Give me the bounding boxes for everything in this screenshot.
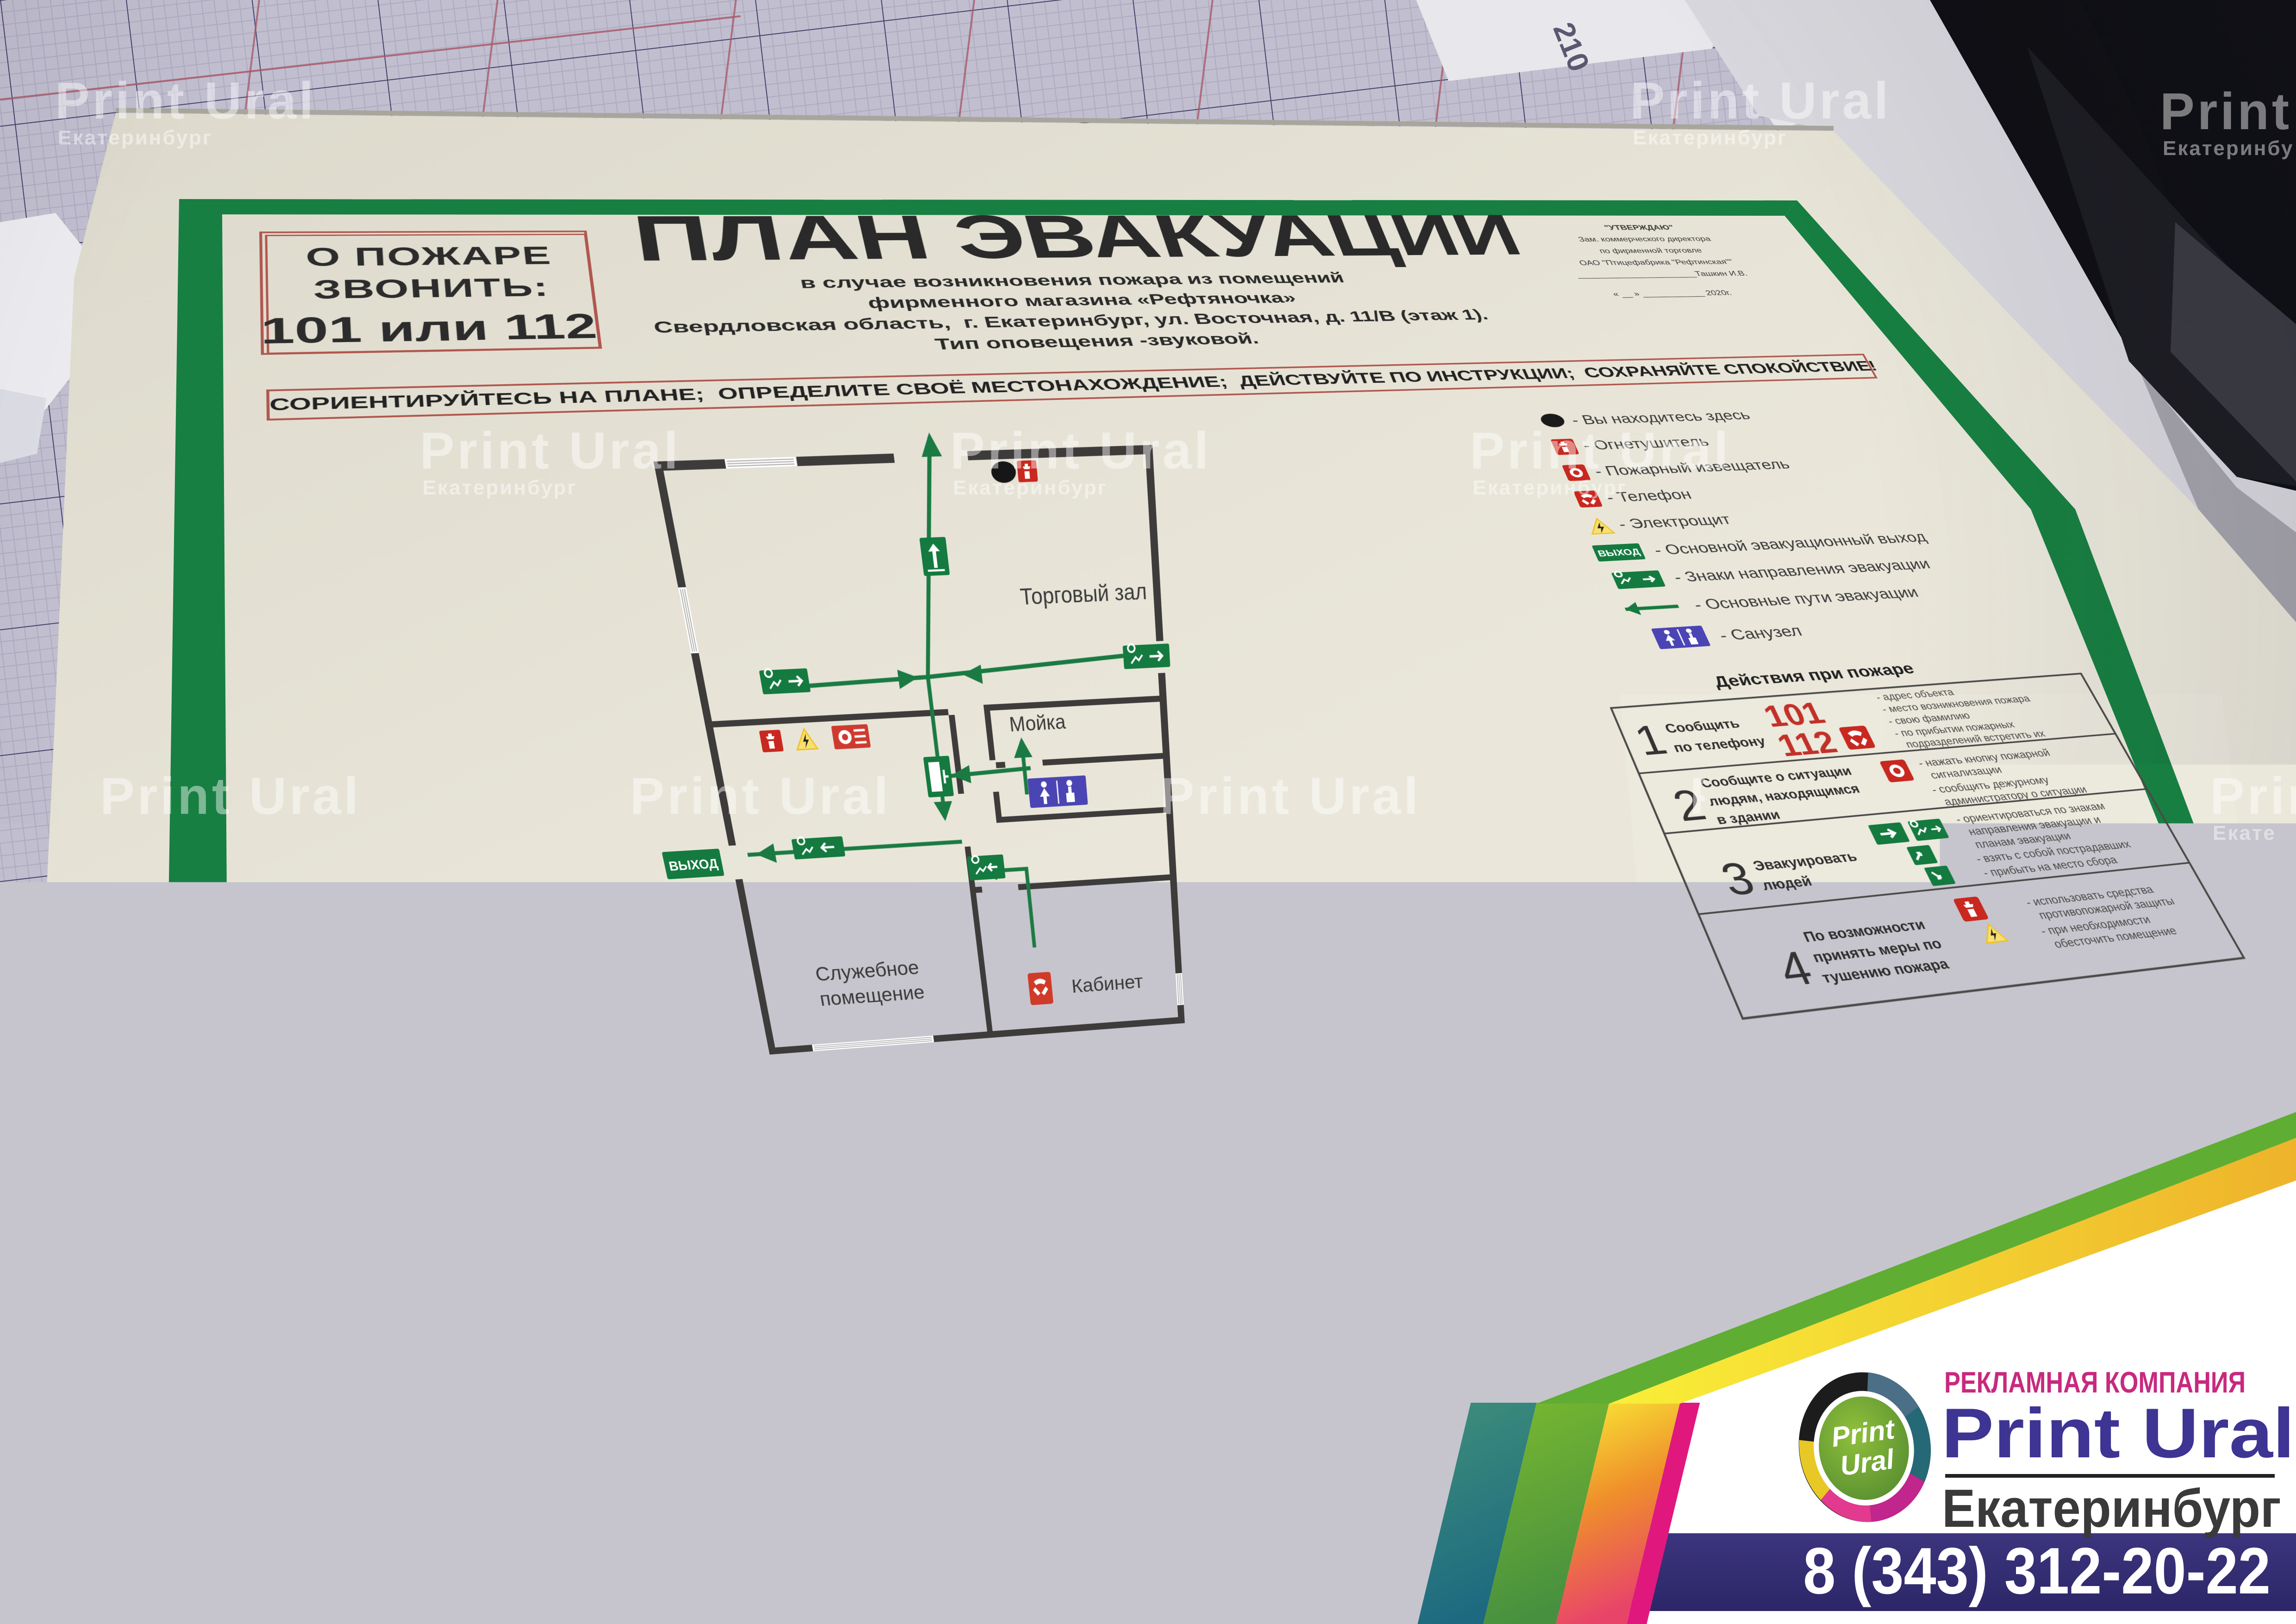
svg-text:Print Ural: Print Ural bbox=[1941, 1394, 2295, 1473]
svg-text:Екатеринбург: Екатеринбург bbox=[1942, 1478, 2281, 1538]
svg-text:8 (343) 312-20-22: 8 (343) 312-20-22 bbox=[1803, 1534, 2271, 1608]
